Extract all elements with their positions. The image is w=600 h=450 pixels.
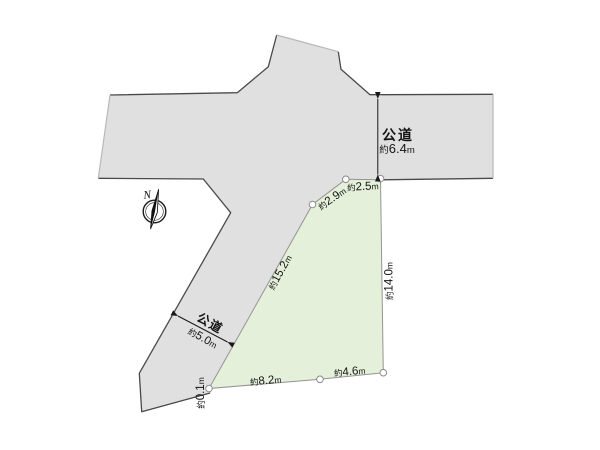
vertex-marker [380,369,387,376]
vertex-marker [343,176,350,183]
dim-label-east: 約14.0m [384,262,396,300]
compass-icon: N [142,189,166,229]
vertex-marker [317,376,324,383]
compass-north-label: N [142,189,153,202]
vertex-marker [309,201,316,208]
dim-label-southwest-tip: 約0.1m [195,377,207,409]
site-plan-canvas: 公道 約6.4m 公道 約5.0m 約2.5m 約2.9m 約15.2m 約14… [0,0,600,450]
site-plan-svg: 公道 約6.4m 公道 約5.0m 約2.5m 約2.9m 約15.2m 約14… [0,0,600,450]
